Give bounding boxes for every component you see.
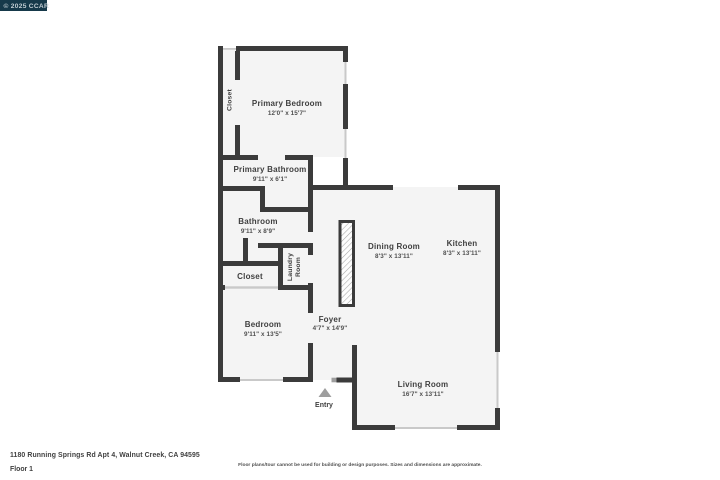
outer-wall-right <box>495 185 500 352</box>
room-dim-foyer: 4'7" x 14'9" <box>313 325 348 332</box>
room-label-primary-bathroom: Primary Bathroom <box>234 165 307 174</box>
hatched-divider <box>340 222 354 306</box>
room-dim-bathroom: 9'11" x 8'9" <box>241 228 275 235</box>
room-dim-living-room: 16'7" x 13'11" <box>402 391 444 398</box>
room-label-living-room: Living Room <box>398 380 449 389</box>
room-label-primary-bedroom: Primary Bedroom <box>252 99 322 108</box>
floorplan-canvas: Primary Bedroom 12'0" x 15'7" Closet Pri… <box>0 0 720 480</box>
room-label-laundry-line2: Room <box>295 257 302 277</box>
watermark-text: © 2025 CCAR <box>4 2 50 10</box>
room-label-bathroom: Bathroom <box>238 217 277 226</box>
entry-door <box>332 378 353 383</box>
floorplan-page: Primary Bedroom 12'0" x 15'7" Closet Pri… <box>0 0 720 480</box>
disclaimer-text: Floor plans/tour cannot be used for buil… <box>238 462 482 468</box>
room-dim-kitchen: 8'3" x 13'11" <box>443 250 481 257</box>
room-dim-bedroom: 9'11" x 13'5" <box>244 331 282 338</box>
room-label-bedroom: Bedroom <box>245 320 282 329</box>
entry-arrow-icon <box>319 388 332 397</box>
footer: 1180 Running Springs Rd Apt 4, Walnut Cr… <box>10 452 483 473</box>
address-text: 1180 Running Springs Rd Apt 4, Walnut Cr… <box>10 452 200 459</box>
outer-wall-left <box>218 46 223 382</box>
entry-label: Entry <box>315 402 333 409</box>
room-dim-dining-room: 8'3" x 13'11" <box>375 253 413 260</box>
room-dim-primary-bedroom: 12'0" x 15'7" <box>268 110 306 117</box>
floor-label: Floor 1 <box>10 466 33 473</box>
room-label-laundry-line1: Laundry <box>287 253 294 281</box>
room-label-primary-bedroom-closet: Closet <box>227 88 234 111</box>
room-label-kitchen: Kitchen <box>447 239 478 248</box>
room-dim-primary-bathroom: 9'11" x 6'1" <box>253 176 287 183</box>
room-label-foyer: Foyer <box>319 315 342 324</box>
room-label-dining-room: Dining Room <box>368 242 420 251</box>
watermark-badge: © 2025 CCAR <box>0 0 49 11</box>
room-label-hall-closet: Closet <box>237 272 263 281</box>
